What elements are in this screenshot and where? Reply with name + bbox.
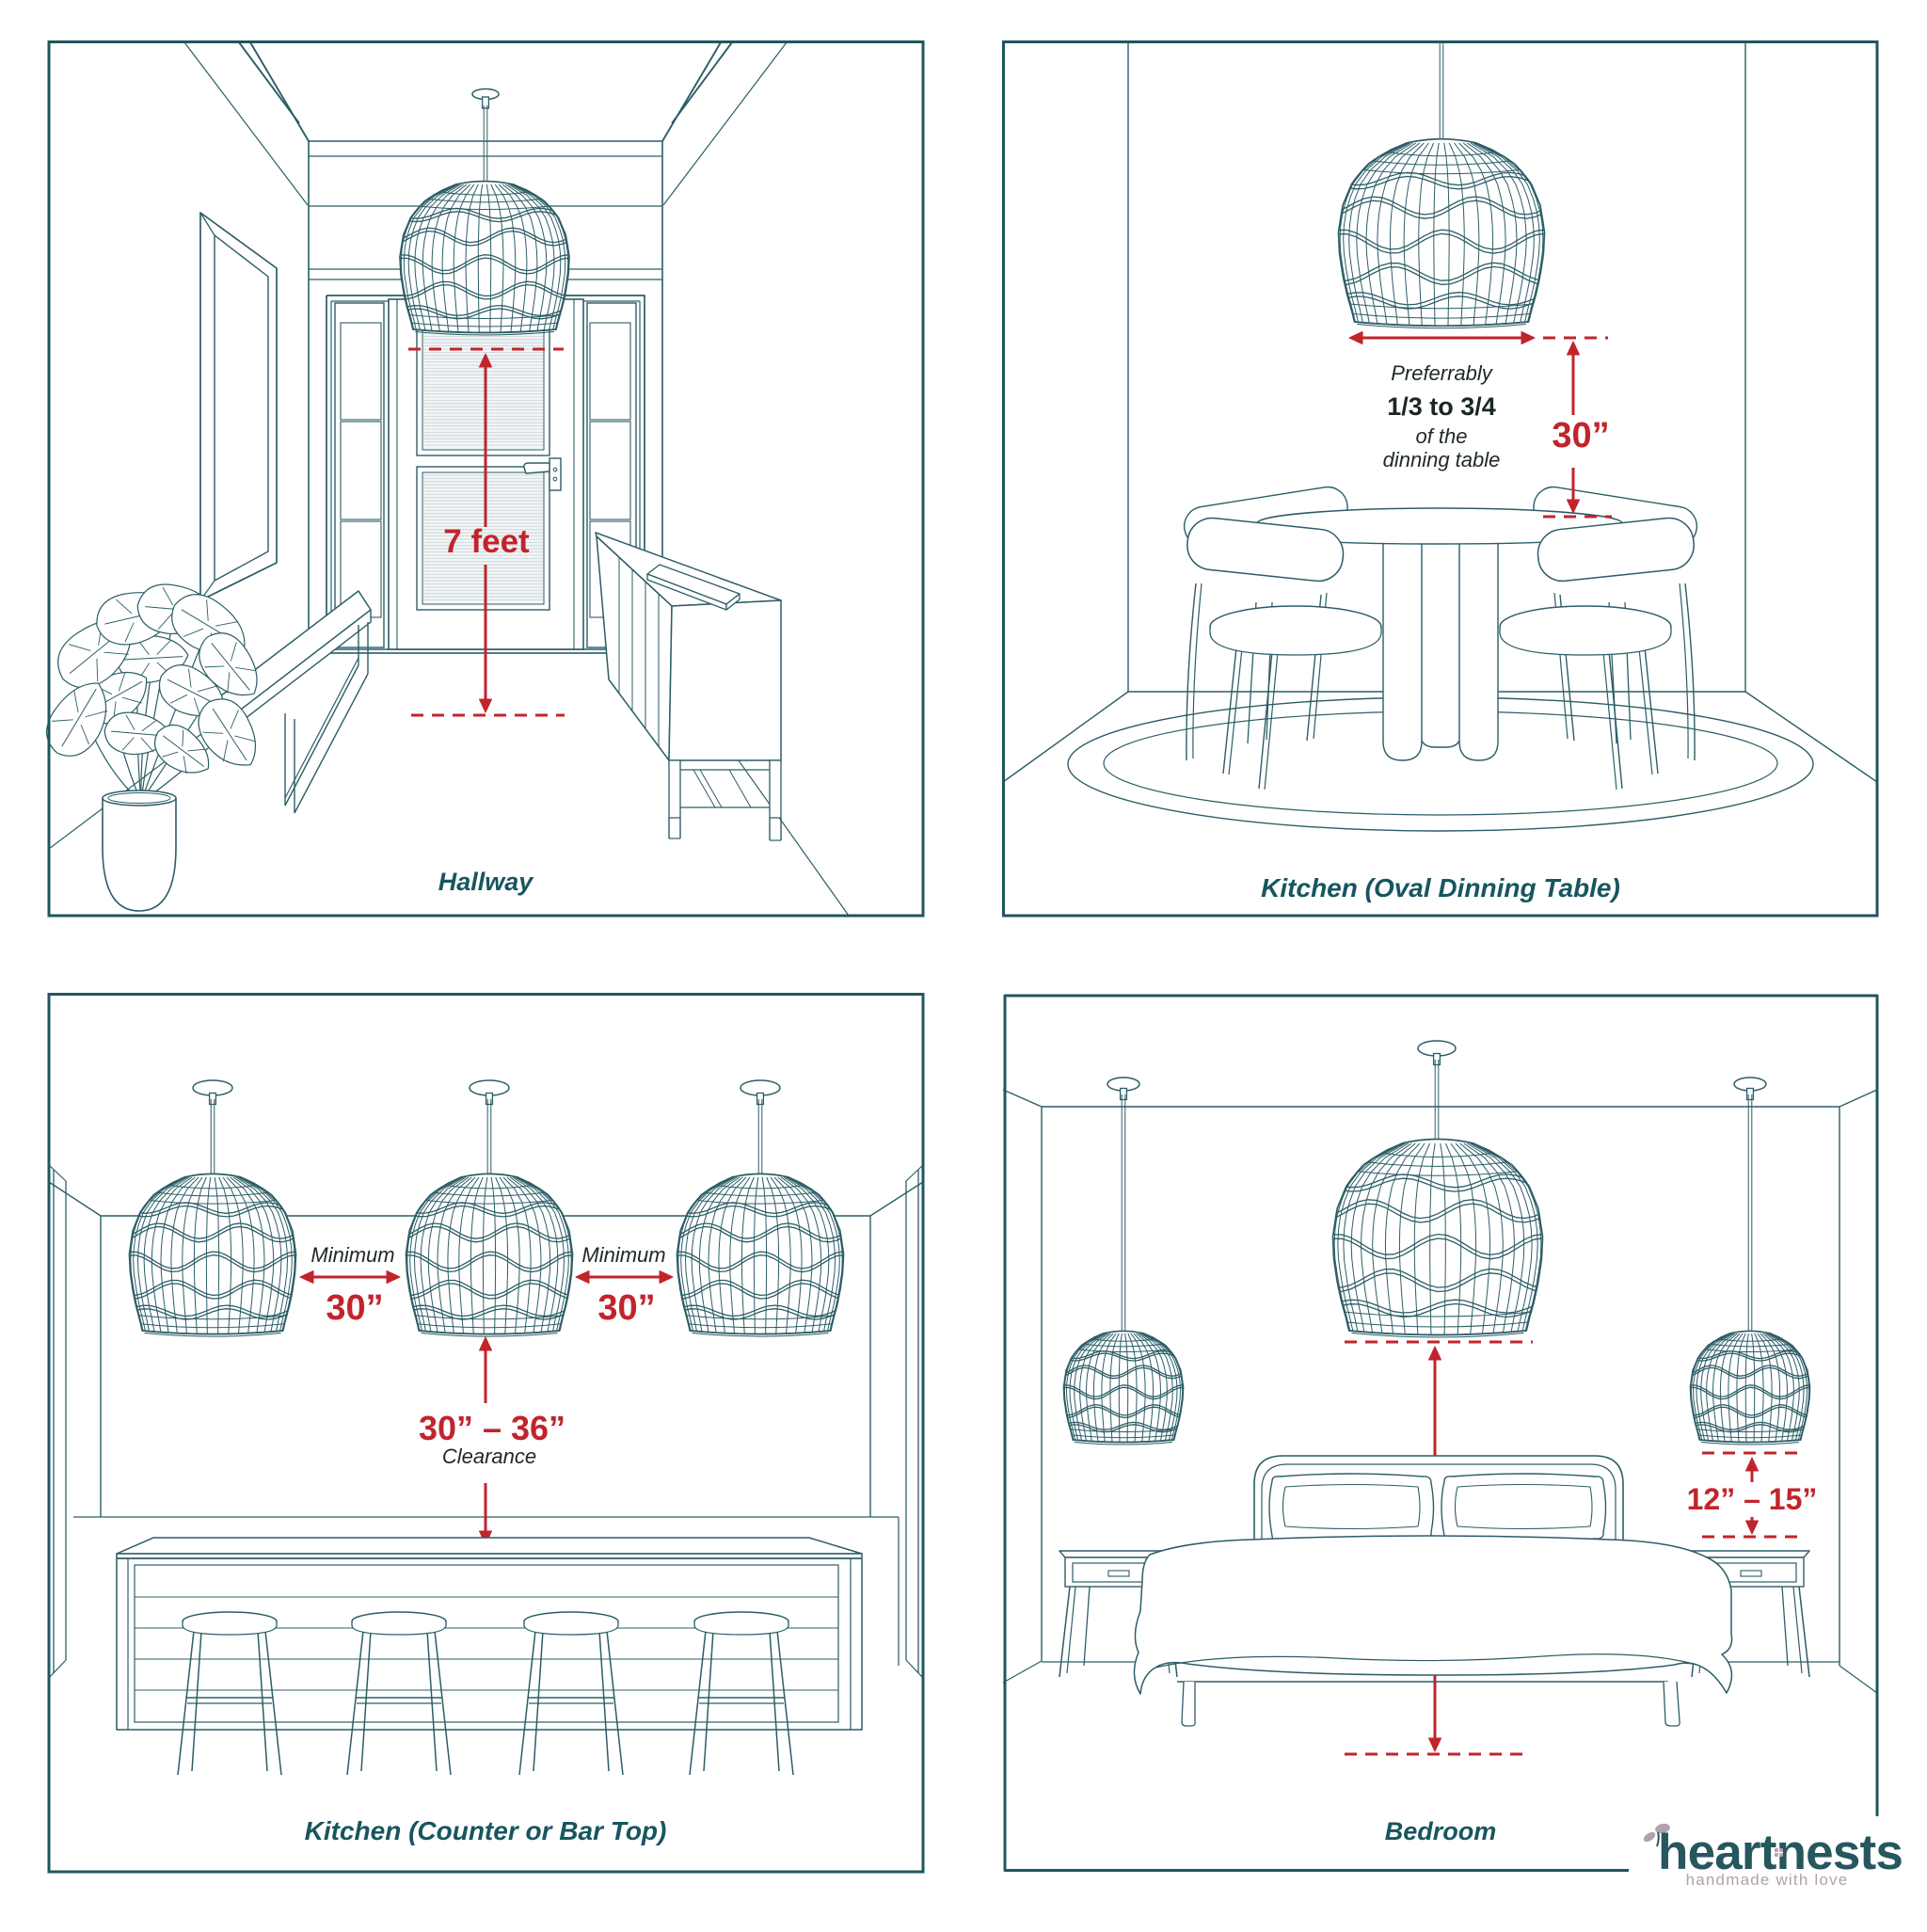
- svg-text:30”: 30”: [326, 1288, 383, 1328]
- svg-text:1/3 to 3/4: 1/3 to 3/4: [1387, 392, 1496, 421]
- svg-text:7 feet: 7 feet: [443, 523, 530, 560]
- svg-text:handmade with love: handmade with love: [1686, 1871, 1849, 1889]
- svg-text:Kitchen (Counter or Bar Top): Kitchen (Counter or Bar Top): [305, 1816, 667, 1845]
- svg-text:Bedroom: Bedroom: [1385, 1817, 1497, 1845]
- svg-text:of the: of the: [1415, 424, 1467, 448]
- svg-text:12” – 15”: 12” – 15”: [1687, 1482, 1818, 1516]
- svg-text:30” – 36”: 30” – 36”: [419, 1409, 565, 1447]
- svg-text:dinning table: dinning table: [1383, 448, 1501, 471]
- svg-text:Clearance: Clearance: [442, 1445, 536, 1468]
- svg-text:Minimum: Minimum: [581, 1243, 665, 1267]
- svg-text:Kitchen (Oval Dinning Table): Kitchen (Oval Dinning Table): [1261, 873, 1620, 902]
- svg-text:30”: 30”: [597, 1288, 655, 1328]
- svg-text:Preferrably: Preferrably: [1391, 361, 1494, 385]
- svg-text:30”: 30”: [1552, 416, 1609, 455]
- svg-text:Minimum: Minimum: [311, 1243, 394, 1267]
- svg-text:Hallway: Hallway: [438, 868, 535, 896]
